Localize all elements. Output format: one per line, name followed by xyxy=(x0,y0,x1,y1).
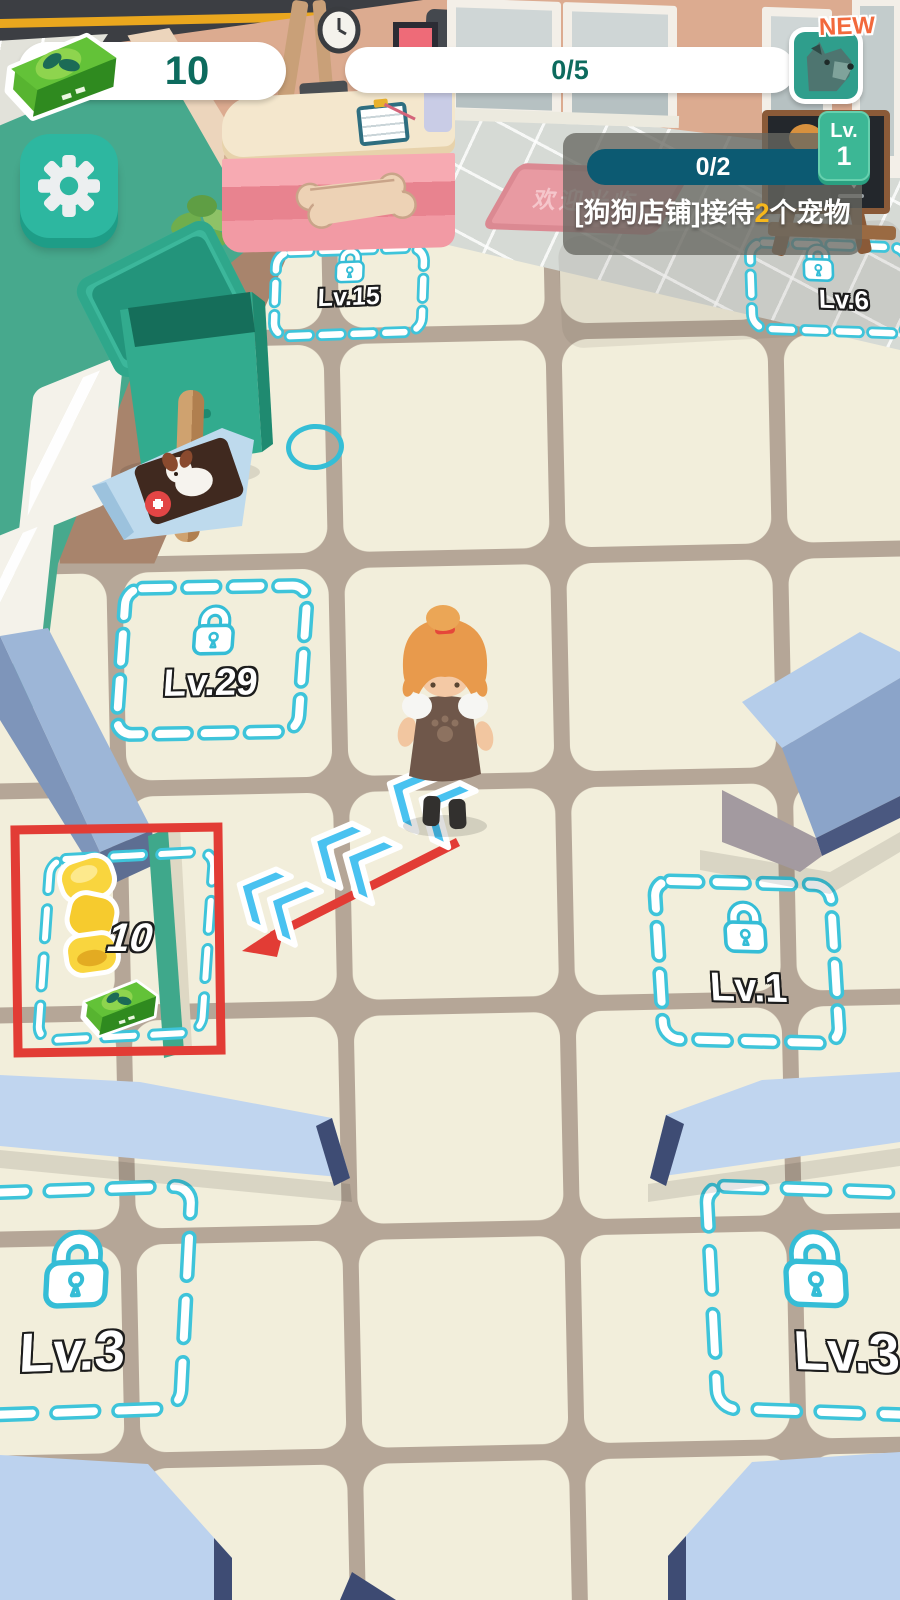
quest-panel[interactable]: 0/2 [狗狗店铺]接待2个宠物 Lv. 1 xyxy=(563,133,862,255)
money-icon xyxy=(73,962,168,1049)
pet-portrait xyxy=(794,32,858,99)
clipboard xyxy=(356,101,410,146)
quest-level-value: 1 xyxy=(820,141,868,171)
locked-zone-lv15[interactable]: Lv.15 xyxy=(264,238,433,346)
new-pet-badge[interactable]: NEW xyxy=(789,27,863,104)
quest-level-badge: Lv. 1 xyxy=(818,111,870,181)
wave-progress-bar: 0/5 xyxy=(345,47,795,93)
game-screen: 欢迎光临 xyxy=(0,0,900,1600)
lock-icon xyxy=(329,244,370,285)
gear-icon xyxy=(38,155,100,217)
dog-icon xyxy=(794,32,858,99)
quest-task-prefix: [狗狗店铺]接待 xyxy=(574,198,754,228)
shopkeeper-character xyxy=(383,604,508,839)
settings-button[interactable] xyxy=(20,134,118,238)
quest-progress-bar: 0/2 xyxy=(587,149,839,185)
new-label: NEW xyxy=(819,12,876,42)
unlock-cost: 10 xyxy=(68,916,193,961)
shop-sign xyxy=(82,412,267,552)
partition-walls-bottom xyxy=(0,1060,900,1600)
wall-clock xyxy=(318,8,360,52)
money-icon xyxy=(0,9,138,137)
quest-level-label: Lv. xyxy=(820,121,868,141)
quest-task-suffix: 个宠物 xyxy=(770,198,851,228)
quest-task-count: 2 xyxy=(754,198,769,228)
quest-task-text: [狗狗店铺]接待2个宠物 xyxy=(563,191,862,230)
